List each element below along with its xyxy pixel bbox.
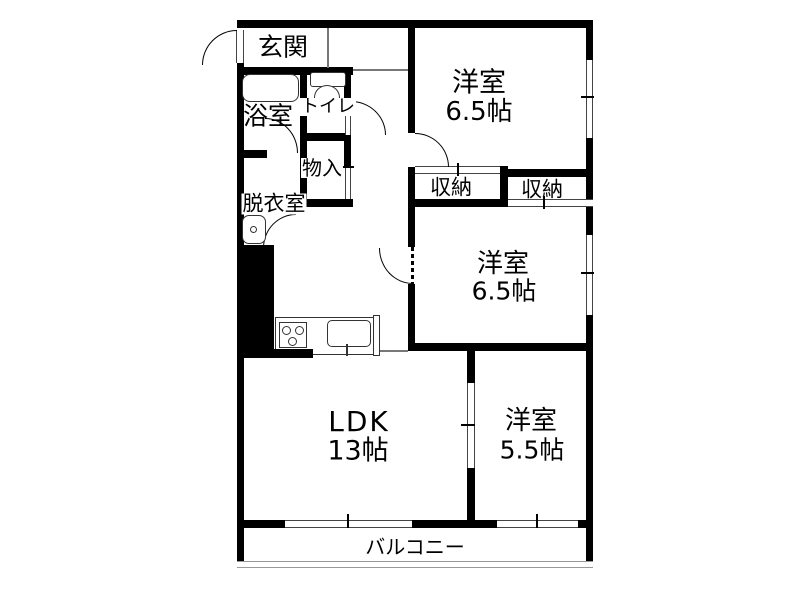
stove-burner <box>288 337 297 346</box>
window-tick <box>581 96 594 98</box>
wall-right-middle <box>586 138 593 235</box>
kitchen-counter-end <box>373 315 380 356</box>
balcony-outer-edge <box>237 561 593 568</box>
wall-bottom-mid <box>412 520 497 528</box>
kitchen-back-wall <box>237 349 313 358</box>
room-label-dressing: 脱衣室 <box>242 194 307 215</box>
entrance-door-arc <box>202 30 237 65</box>
room-label-bedroom-mid: 洋室 <box>477 251 529 277</box>
room-size-ldk: 13帖 <box>327 438 388 465</box>
stove-burner <box>282 326 291 335</box>
room-size-bedroom-mid: 6.5帖 <box>472 279 537 304</box>
ldk-hall-edge-line <box>380 350 408 352</box>
window-tick <box>457 163 459 176</box>
wall-ldk-divider-top <box>467 351 475 383</box>
wall-right-upper <box>586 20 593 60</box>
toilet-door-arc <box>351 101 386 135</box>
wall-hall-a <box>408 20 415 133</box>
entrance-door-leaf <box>236 30 244 63</box>
wall-right-lower <box>586 315 593 568</box>
room-label-ldk: LDK <box>328 408 390 436</box>
wall-top <box>237 20 593 28</box>
window-bedroom-mid-right <box>586 235 593 315</box>
room-label-hall-storage: 物入 <box>301 158 343 178</box>
kitchen-sink <box>327 320 371 347</box>
wall-bath-bottom <box>237 150 267 158</box>
wall-storage-bottom <box>300 199 353 207</box>
window-tick <box>581 272 594 274</box>
wall-hall-b <box>408 167 415 247</box>
bedroom-top-door-arc <box>415 133 449 167</box>
wall-storage-stub <box>344 141 351 167</box>
window-bedroom-top-right <box>586 60 593 138</box>
room-label-bathroom: 浴室 <box>243 104 293 129</box>
room-label-toilet: トイレ <box>300 98 356 116</box>
floor-plan: 玄関 浴室 トイレ 物入 脱衣室 洋室 6.5帖 収納 収納 洋室 6.5帖 L… <box>0 0 800 600</box>
room-label-bedroom-top: 洋室 <box>452 70 506 97</box>
dressing-door-arc <box>263 214 296 248</box>
room-size-bedroom-top: 6.5帖 <box>445 99 512 125</box>
wall-hall-c <box>408 284 415 351</box>
window-tick <box>347 514 349 528</box>
wall-bottom-left <box>237 520 285 528</box>
genkan-step-line-horizontal <box>353 69 408 71</box>
window-tick <box>536 514 538 528</box>
wall-midroom-bottom <box>408 343 593 351</box>
room-label-bedroom-small: 洋室 <box>505 408 557 434</box>
bedroom-mid-door-arc <box>379 248 413 284</box>
room-size-bedroom-small: 5.5帖 <box>500 438 565 463</box>
hall-storage-opening <box>345 167 351 199</box>
room-label-closet-left: 収納 <box>430 178 472 199</box>
window-tick <box>461 424 475 426</box>
pipe-shaft-column <box>237 245 274 358</box>
wall-closet-bottom <box>408 199 508 207</box>
sink-faucet <box>346 344 348 356</box>
wall-toilet-bottom <box>300 133 351 141</box>
bedroom-mid-door-leaf <box>411 247 414 284</box>
bathtub <box>242 74 299 102</box>
stove-burner <box>295 326 304 335</box>
room-label-closet-right: 収納 <box>521 180 563 201</box>
room-label-balcony: バルコニー <box>365 537 465 557</box>
washbasin-drain <box>250 226 257 233</box>
genkan-step-line-vertical <box>327 28 329 68</box>
room-label-genkan: 玄関 <box>258 35 308 60</box>
wall-ldk-divider-bot <box>467 468 475 528</box>
wall-toproom-bottom <box>508 169 593 177</box>
wall-bottom-right <box>578 520 593 528</box>
